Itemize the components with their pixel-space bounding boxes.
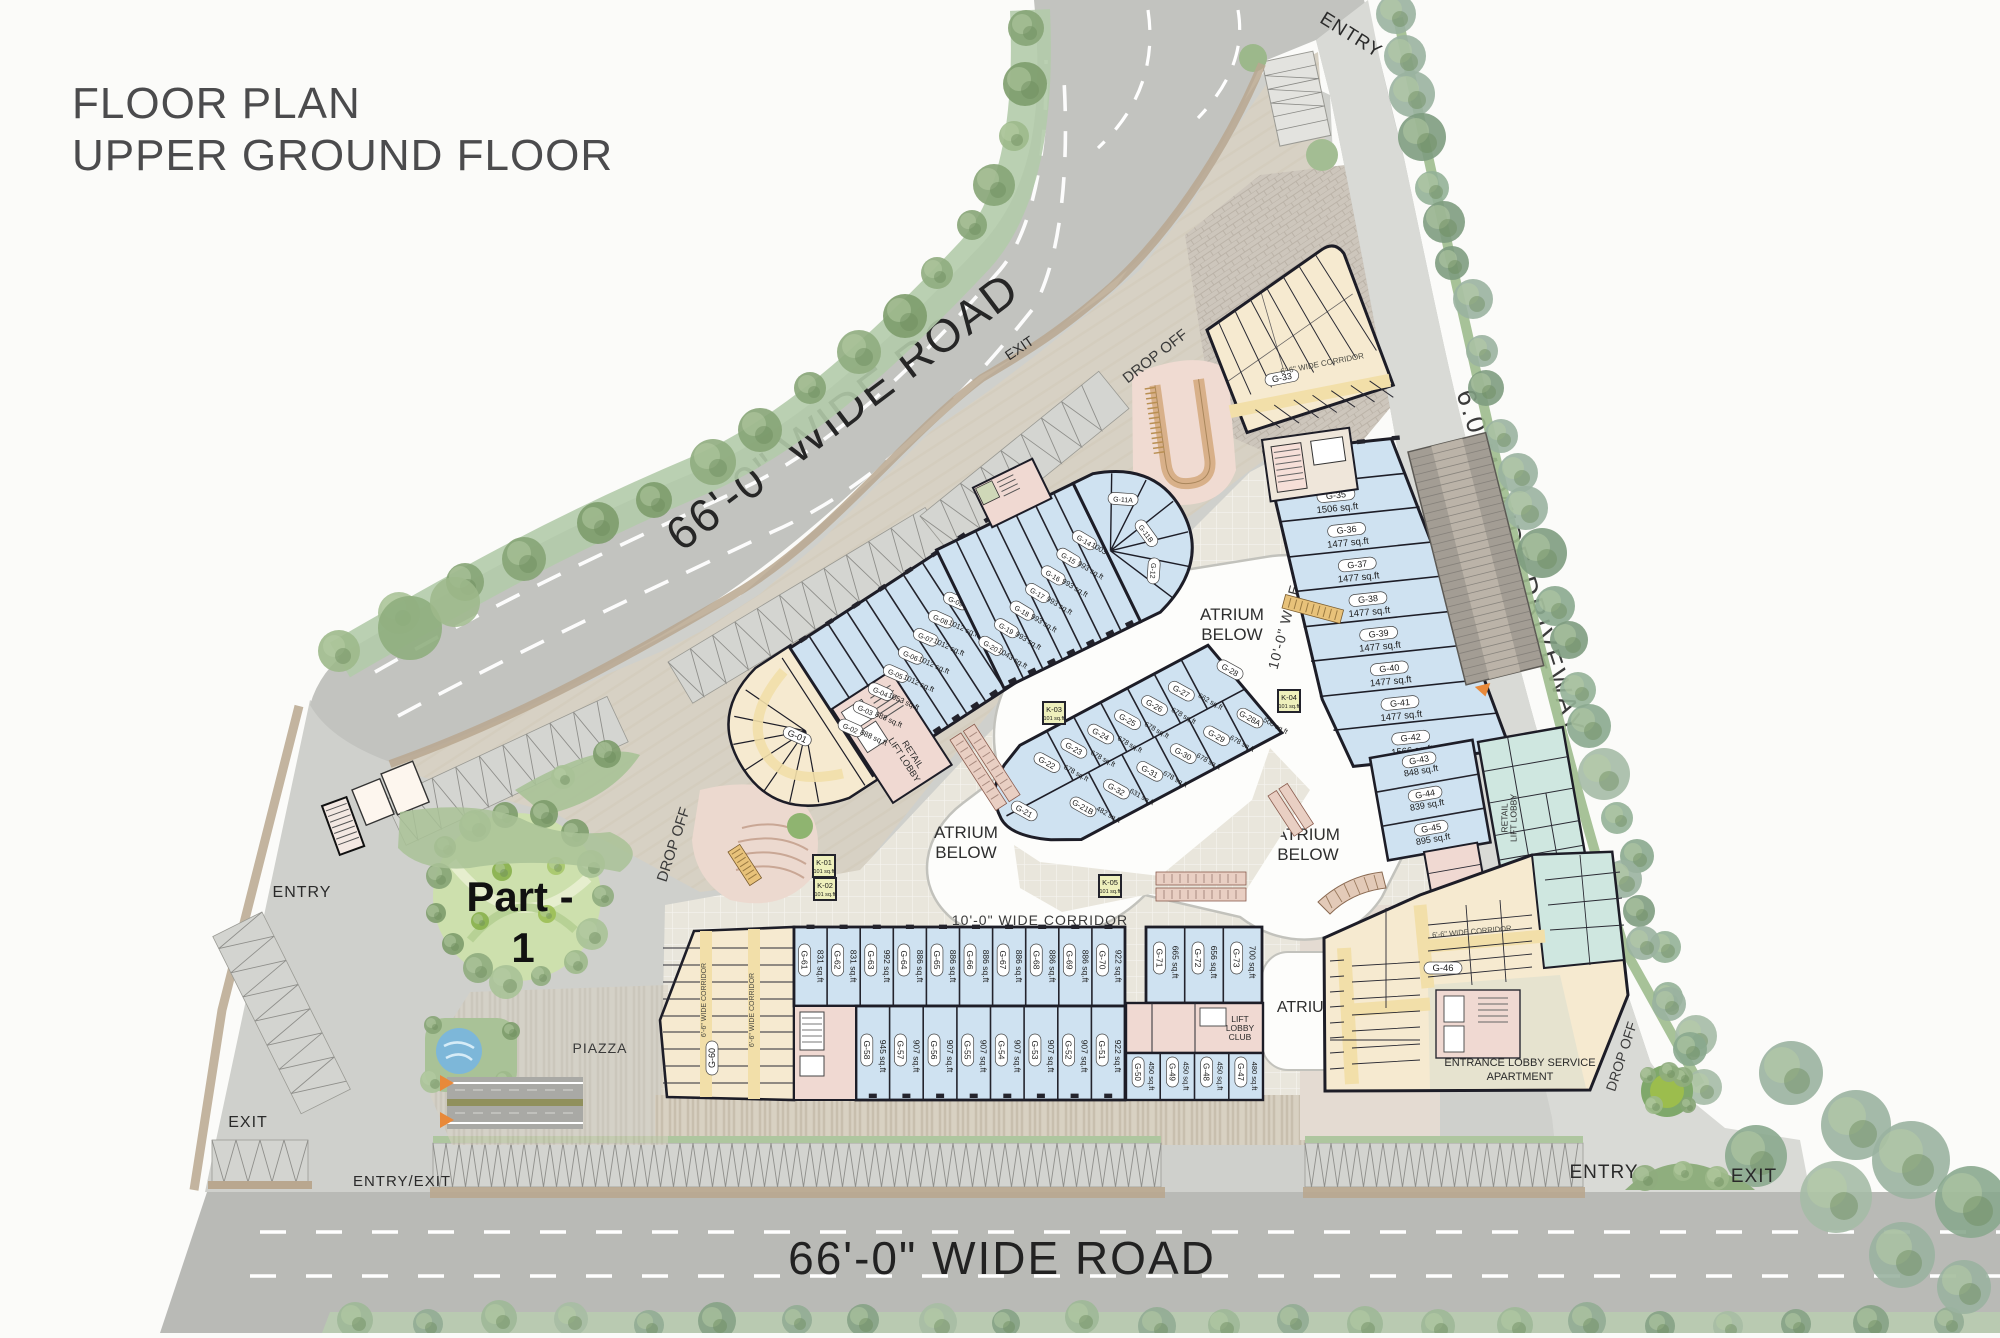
svg-text:ENTRY: ENTRY xyxy=(273,884,332,901)
svg-text:907 sq.ft: 907 sq.ft xyxy=(945,1040,955,1073)
svg-text:BELOW: BELOW xyxy=(1201,625,1262,644)
svg-text:656 sq.ft: 656 sq.ft xyxy=(1209,946,1219,979)
svg-text:886 sq.ft: 886 sq.ft xyxy=(915,950,925,983)
svg-text:G-12: G-12 xyxy=(1148,563,1156,579)
svg-text:G-48: G-48 xyxy=(1202,1063,1211,1081)
svg-text:EXIT: EXIT xyxy=(228,1114,268,1131)
svg-text:G-58: G-58 xyxy=(862,1041,872,1060)
svg-text:886 sq.ft: 886 sq.ft xyxy=(948,950,958,983)
svg-text:450 sq.ft: 450 sq.ft xyxy=(1147,1062,1156,1092)
svg-text:907 sq.ft: 907 sq.ft xyxy=(1046,1040,1056,1073)
svg-text:UPPER GROUND FLOOR: UPPER GROUND FLOOR xyxy=(72,131,613,180)
svg-text:G-39: G-39 xyxy=(1368,628,1389,640)
svg-text:ENTRANCE LOBBY SERVICE: ENTRANCE LOBBY SERVICE xyxy=(1444,1057,1595,1069)
svg-text:G-71: G-71 xyxy=(1154,949,1164,968)
svg-text:EXIT: EXIT xyxy=(1731,1166,1777,1187)
svg-text:G-69: G-69 xyxy=(1064,951,1074,970)
svg-text:ENTRY/EXIT: ENTRY/EXIT xyxy=(353,1173,451,1190)
svg-text:K-01: K-01 xyxy=(816,858,832,867)
svg-text:1: 1 xyxy=(511,924,534,971)
svg-text:G-55: G-55 xyxy=(963,1041,973,1060)
svg-text:101 sq.ft: 101 sq.ft xyxy=(1278,704,1300,710)
svg-text:G-57: G-57 xyxy=(895,1041,905,1060)
svg-text:G-56: G-56 xyxy=(929,1041,939,1060)
svg-text:G-46: G-46 xyxy=(1432,963,1453,974)
svg-text:ATRIUM: ATRIUM xyxy=(1200,605,1264,624)
svg-text:886 sq.ft: 886 sq.ft xyxy=(1014,950,1024,983)
svg-text:665 sq.ft: 665 sq.ft xyxy=(1170,946,1180,979)
svg-text:101 sq.ft: 101 sq.ft xyxy=(813,869,835,875)
svg-text:831 sq.ft: 831 sq.ft xyxy=(816,950,826,983)
svg-text:G-61: G-61 xyxy=(800,951,810,970)
svg-text:G-65: G-65 xyxy=(932,951,942,970)
svg-text:G-67: G-67 xyxy=(998,951,1008,970)
svg-text:922 sq.ft: 922 sq.ft xyxy=(1113,1040,1123,1073)
svg-text:G-54: G-54 xyxy=(996,1041,1006,1060)
svg-text:CLUB: CLUB xyxy=(1229,1032,1252,1042)
svg-text:G-47: G-47 xyxy=(1236,1063,1245,1081)
svg-text:101 sq.ft: 101 sq.ft xyxy=(1043,716,1065,722)
svg-text:907 sq.ft: 907 sq.ft xyxy=(1012,1040,1022,1073)
svg-text:907 sq.ft: 907 sq.ft xyxy=(979,1040,989,1073)
svg-text:APARTMENT: APARTMENT xyxy=(1487,1071,1554,1083)
svg-text:101 sq.ft: 101 sq.ft xyxy=(814,892,836,898)
svg-text:66'-0" WIDE ROAD: 66'-0" WIDE ROAD xyxy=(788,1232,1216,1284)
svg-text:922 sq.ft: 922 sq.ft xyxy=(1113,950,1123,983)
svg-text:BELOW: BELOW xyxy=(935,843,996,862)
svg-text:PIAZZA: PIAZZA xyxy=(572,1040,627,1056)
svg-text:945 sq.ft: 945 sq.ft xyxy=(878,1040,888,1073)
svg-text:450 sq.ft: 450 sq.ft xyxy=(1181,1062,1190,1092)
svg-text:FLOOR PLAN: FLOOR PLAN xyxy=(72,79,361,128)
svg-text:G-41: G-41 xyxy=(1390,697,1411,709)
svg-text:G-37: G-37 xyxy=(1347,558,1368,570)
svg-text:G-40: G-40 xyxy=(1379,662,1400,674)
svg-text:G-64: G-64 xyxy=(899,951,909,970)
svg-text:6'-6" WIDE CORRIDOR: 6'-6" WIDE CORRIDOR xyxy=(701,963,708,1037)
svg-text:G-60: G-60 xyxy=(707,1048,717,1068)
svg-text:G-70: G-70 xyxy=(1097,951,1107,970)
svg-text:886 sq.ft: 886 sq.ft xyxy=(1080,950,1090,983)
svg-text:907 sq.ft: 907 sq.ft xyxy=(1080,1040,1090,1073)
svg-text:992 sq.ft: 992 sq.ft xyxy=(882,950,892,983)
svg-text:G-68: G-68 xyxy=(1031,951,1041,970)
svg-text:BELOW: BELOW xyxy=(1277,845,1338,864)
svg-text:K-02: K-02 xyxy=(817,881,833,890)
svg-text:Part -: Part - xyxy=(466,873,573,920)
svg-text:831 sq.ft: 831 sq.ft xyxy=(849,950,859,983)
svg-text:700 sq.ft: 700 sq.ft xyxy=(1248,946,1258,979)
svg-text:907 sq.ft: 907 sq.ft xyxy=(911,1040,921,1073)
svg-text:G-36: G-36 xyxy=(1336,524,1357,536)
svg-text:G-72: G-72 xyxy=(1193,949,1203,968)
svg-text:G-11A: G-11A xyxy=(1113,496,1133,504)
svg-text:G-50: G-50 xyxy=(1133,1063,1142,1081)
svg-text:G-53: G-53 xyxy=(1030,1041,1040,1060)
svg-text:G-73: G-73 xyxy=(1232,949,1242,968)
svg-text:G-49: G-49 xyxy=(1167,1063,1176,1081)
svg-text:886 sq.ft: 886 sq.ft xyxy=(981,950,991,983)
svg-text:G-62: G-62 xyxy=(833,951,843,970)
svg-text:886 sq.ft: 886 sq.ft xyxy=(1047,950,1057,983)
svg-text:G-52: G-52 xyxy=(1064,1041,1074,1060)
svg-text:6'-6" WIDE CORRIDOR: 6'-6" WIDE CORRIDOR xyxy=(749,973,756,1047)
svg-text:K-03: K-03 xyxy=(1046,705,1062,714)
svg-text:ENTRY: ENTRY xyxy=(1569,1162,1638,1183)
svg-text:K-04: K-04 xyxy=(1281,693,1297,702)
svg-text:G-51: G-51 xyxy=(1097,1041,1107,1060)
svg-text:G-42: G-42 xyxy=(1400,732,1421,744)
svg-text:G-38: G-38 xyxy=(1357,593,1378,605)
svg-text:LIFT LOBBY: LIFT LOBBY xyxy=(1509,794,1519,842)
svg-text:101 sq.ft: 101 sq.ft xyxy=(1099,889,1121,895)
svg-text:K-05: K-05 xyxy=(1102,878,1118,887)
svg-text:ATRIUM: ATRIUM xyxy=(934,823,998,842)
svg-text:G-66: G-66 xyxy=(965,951,975,970)
svg-text:480 sq.ft: 480 sq.ft xyxy=(1250,1062,1259,1092)
svg-text:G-63: G-63 xyxy=(866,951,876,970)
svg-text:450 sq.ft: 450 sq.ft xyxy=(1216,1062,1225,1092)
